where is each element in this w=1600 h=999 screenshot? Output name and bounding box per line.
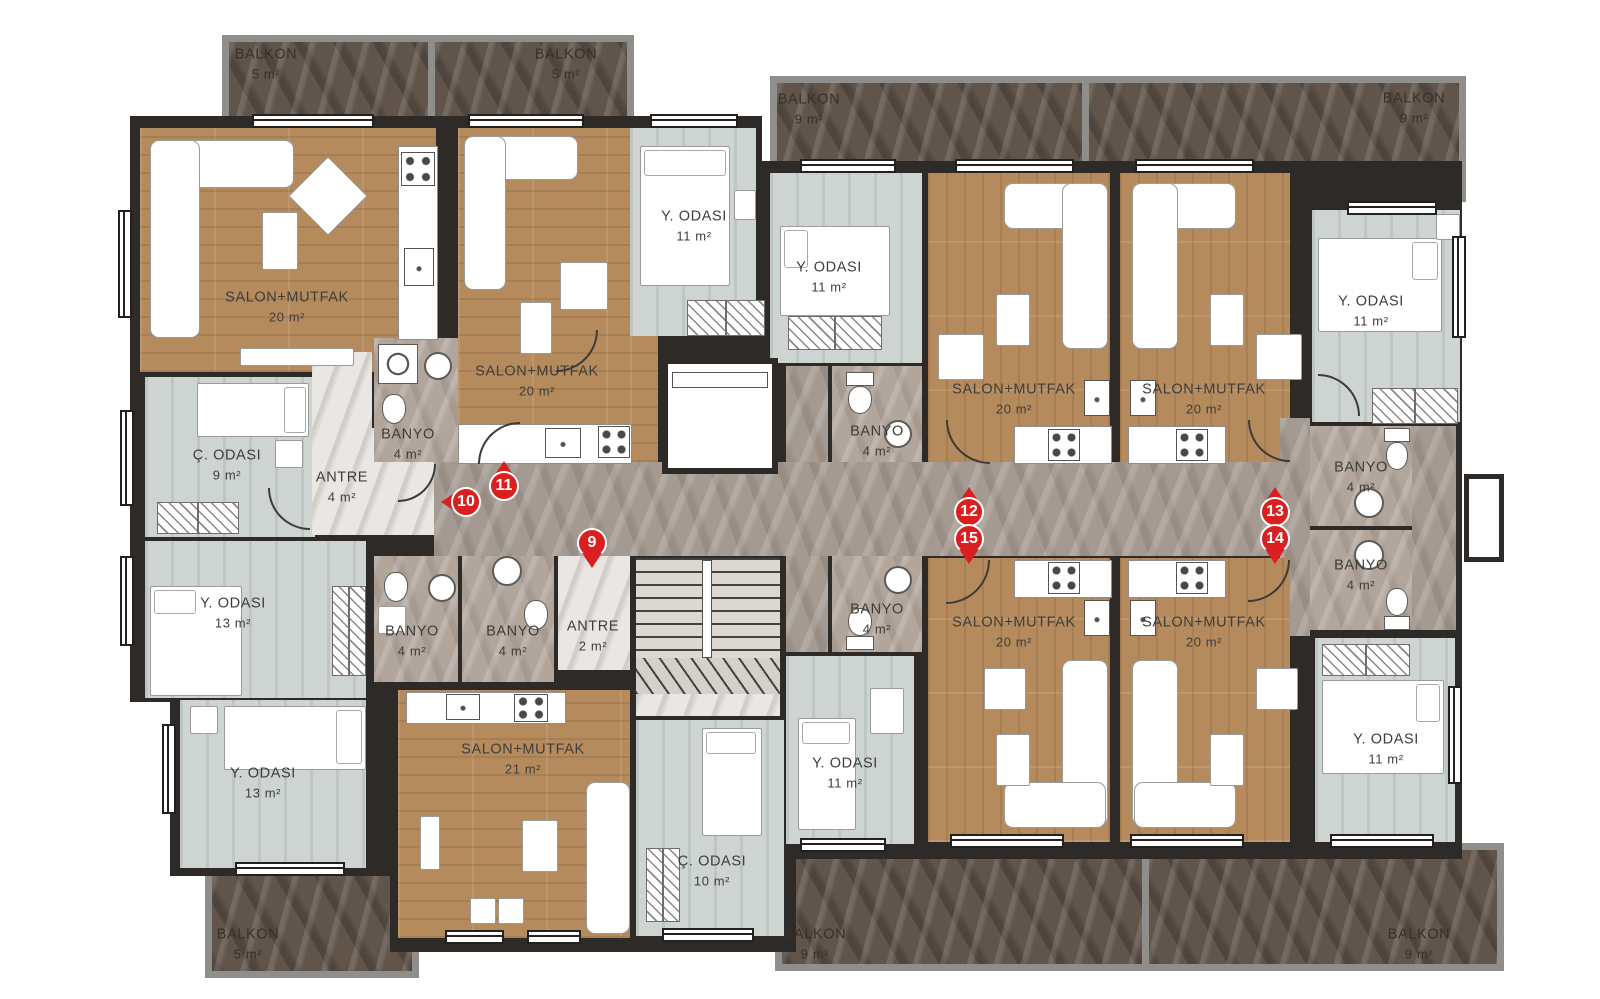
stove-icon [1048,429,1080,461]
toilet-icon [382,394,406,424]
room-label: SALON+MUTFAK20 m² [952,380,1076,417]
room-label: BANYO4 m² [385,622,439,659]
washbasin-icon [884,566,912,594]
wardrobe [646,848,680,922]
balcony-label: BALKON9 m² [1383,89,1445,126]
entry-apt-12 [786,366,828,462]
elevator-door [672,372,768,388]
cistern [1384,428,1410,442]
wardrobe [788,316,882,350]
room-label: Y. ODASI11 m² [1353,730,1419,767]
chair [498,898,524,924]
pillow [1416,684,1440,722]
washbasin-icon [428,574,456,602]
room-salon-mutfak-top-left-2-ext [630,336,658,462]
cistern [846,636,874,650]
sofa [586,782,630,934]
duct-right [1412,426,1456,630]
room-label: Y. ODASI11 m² [796,258,862,295]
window [662,928,754,942]
sofa [150,140,200,338]
tv-unit [420,816,440,870]
stove-icon [598,426,630,458]
unit-marker-13[interactable]: 13 [1260,487,1290,527]
tv-unit [240,348,354,366]
room-label: SALON+MUTFAK20 m² [475,362,599,399]
window [162,724,176,814]
room-label: ANTRE2 m² [567,617,619,654]
stove-icon [1048,562,1080,594]
room-label: BANYO4 m² [486,622,540,659]
nightstand [190,706,218,734]
room-label: Y. ODASI11 m² [812,754,878,791]
stove-icon [1176,429,1208,461]
unit-marker-12[interactable]: 12 [954,487,984,527]
armchair [1256,334,1302,380]
nightstand [734,190,756,220]
floor-plan: SALON+MUTFAK20 m² SALON+MUTFAK20 m² Y. O… [0,0,1600,999]
room-label: SALON+MUTFAK20 m² [1142,613,1266,650]
room-label: Ç. ODASI10 m² [678,852,746,889]
pillow [284,387,306,433]
room-label: BANYO4 m² [1334,458,1388,495]
cistern [1384,616,1410,630]
toilet-icon [848,386,872,414]
corridor [434,462,1310,556]
toilet-icon [1386,442,1408,470]
window [650,114,738,128]
room-label: ANTRE4 m² [316,468,368,505]
sink-icon [1084,380,1110,416]
staircase-winder [636,658,780,694]
coffee-table [996,734,1030,786]
window [800,159,896,173]
window [235,862,345,876]
pillow [706,732,756,754]
balcony-label: BALKON9 m² [784,925,846,962]
sofa [464,136,506,290]
toilet-icon [1386,588,1408,616]
elevator [662,358,778,474]
staircase-stringer [702,560,712,658]
unit-marker-11[interactable]: 11 [489,461,519,501]
pin-point-down-icon [959,549,979,564]
coffee-table [262,212,298,270]
room-label: BANYO4 m² [850,422,904,459]
window [120,410,134,506]
pillow [336,710,362,764]
armchair [560,262,608,310]
window [1347,201,1437,215]
unit-marker-14[interactable]: 14 [1260,524,1290,564]
window [1135,159,1254,173]
cistern [846,372,874,386]
shaft-right [1464,474,1504,562]
stair-landing [636,694,780,716]
sofa [1062,183,1108,349]
room-label: BANYO4 m² [1334,556,1388,593]
toilet-icon [384,572,408,602]
window [1130,834,1244,848]
window [1448,686,1462,784]
window [955,159,1074,173]
room-label: BANYO4 m² [850,600,904,637]
desk [870,688,904,734]
wardrobe [1322,644,1410,676]
sofa [1134,782,1236,828]
pillow [154,590,196,614]
dining-table [522,820,558,872]
window [1452,236,1466,338]
room-label: SALON+MUTFAK20 m² [1142,380,1266,417]
window [468,114,584,128]
room-label: Y. ODASI13 m² [230,764,296,801]
room-label: Y. ODASI11 m² [661,207,727,244]
window [445,930,504,944]
washbasin-icon [492,556,522,586]
wardrobe [1372,388,1458,424]
armchair [984,668,1026,710]
window [120,556,134,646]
pillow [802,722,850,744]
washbasin-icon [424,352,452,380]
window [118,210,132,318]
sofa [1132,183,1178,349]
coffee-table [1210,734,1244,786]
window [1330,834,1434,848]
room-label: SALON+MUTFAK20 m² [225,288,349,325]
sink-icon [404,248,434,286]
wardrobe [332,586,366,676]
armchair [1256,668,1298,710]
pillow [1412,242,1438,280]
coffee-table [520,302,552,354]
sofa [1004,782,1106,828]
stove-icon [401,152,435,186]
window [252,114,374,128]
chair [470,898,496,924]
room-label: SALON+MUTFAK20 m² [952,613,1076,650]
shower-icon [378,344,418,384]
pillow [644,150,726,176]
sink-icon [545,428,581,458]
room-label: Y. ODASI13 m² [200,594,266,631]
stove-icon [1176,562,1208,594]
balcony-label: BALKON9 m² [1388,925,1450,962]
entry-apt-15 [786,556,828,652]
unit-marker-9[interactable]: 9 [577,528,607,568]
sink-icon [446,694,480,720]
window [527,930,581,944]
room-label: BANYO4 m² [381,425,435,462]
coffee-table [996,294,1030,346]
balcony-label: BALKON5 m² [235,45,297,82]
room-label: Y. ODASI11 m² [1338,292,1404,329]
balcony-label: BALKON5 m² [535,45,597,82]
stove-icon [514,694,548,722]
coffee-table [1210,294,1244,346]
balcony-label: BALKON5 m² [217,925,279,962]
room-label: Ç. ODASI9 m² [193,446,261,483]
pin-point-down-icon [1265,549,1285,564]
room-label: SALON+MUTFAK21 m² [461,740,585,777]
unit-marker-15[interactable]: 15 [954,524,984,564]
pin-point-down-icon [582,553,602,568]
window [950,834,1064,848]
wardrobe [157,502,239,534]
unit-marker-10[interactable]: 10 [441,487,481,517]
nightstand [275,440,303,468]
window [800,838,886,852]
wardrobe [687,300,765,336]
sink-icon [1084,600,1110,636]
balcony-label: BALKON9 m² [778,90,840,127]
armchair [938,334,984,380]
